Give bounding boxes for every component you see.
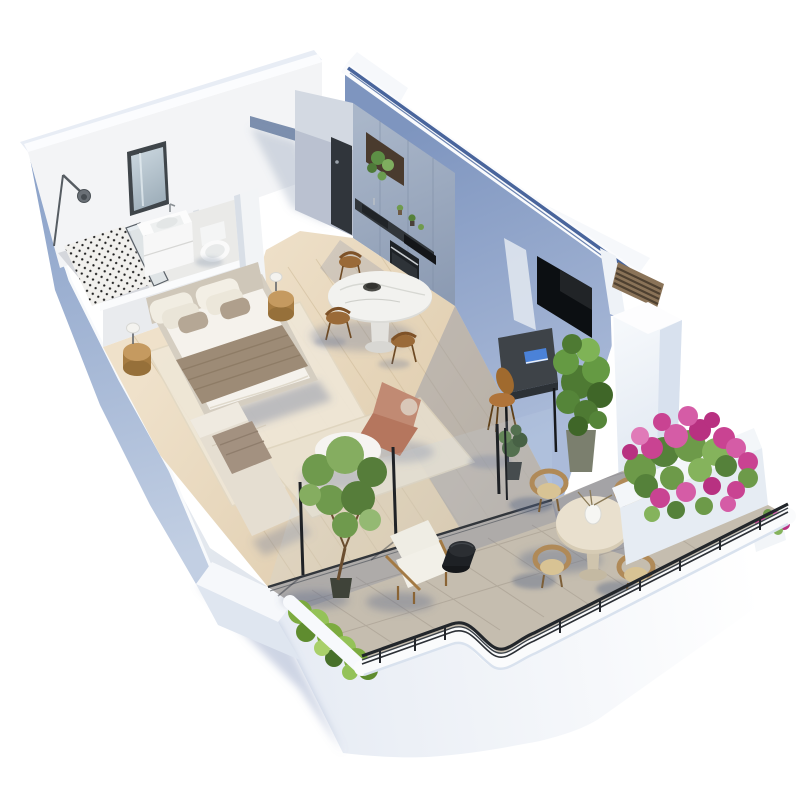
- door-frame-post3: [497, 424, 499, 494]
- door-handle: [335, 160, 339, 164]
- bathroom-mirror: [127, 141, 169, 216]
- floorplan-render-stage: [0, 0, 800, 800]
- white-vase: [585, 504, 601, 524]
- apartment-isometric-render: [0, 0, 800, 800]
- entry-door: [331, 137, 352, 235]
- mirror-glass: [131, 147, 166, 211]
- lounger-bolster: [401, 399, 418, 416]
